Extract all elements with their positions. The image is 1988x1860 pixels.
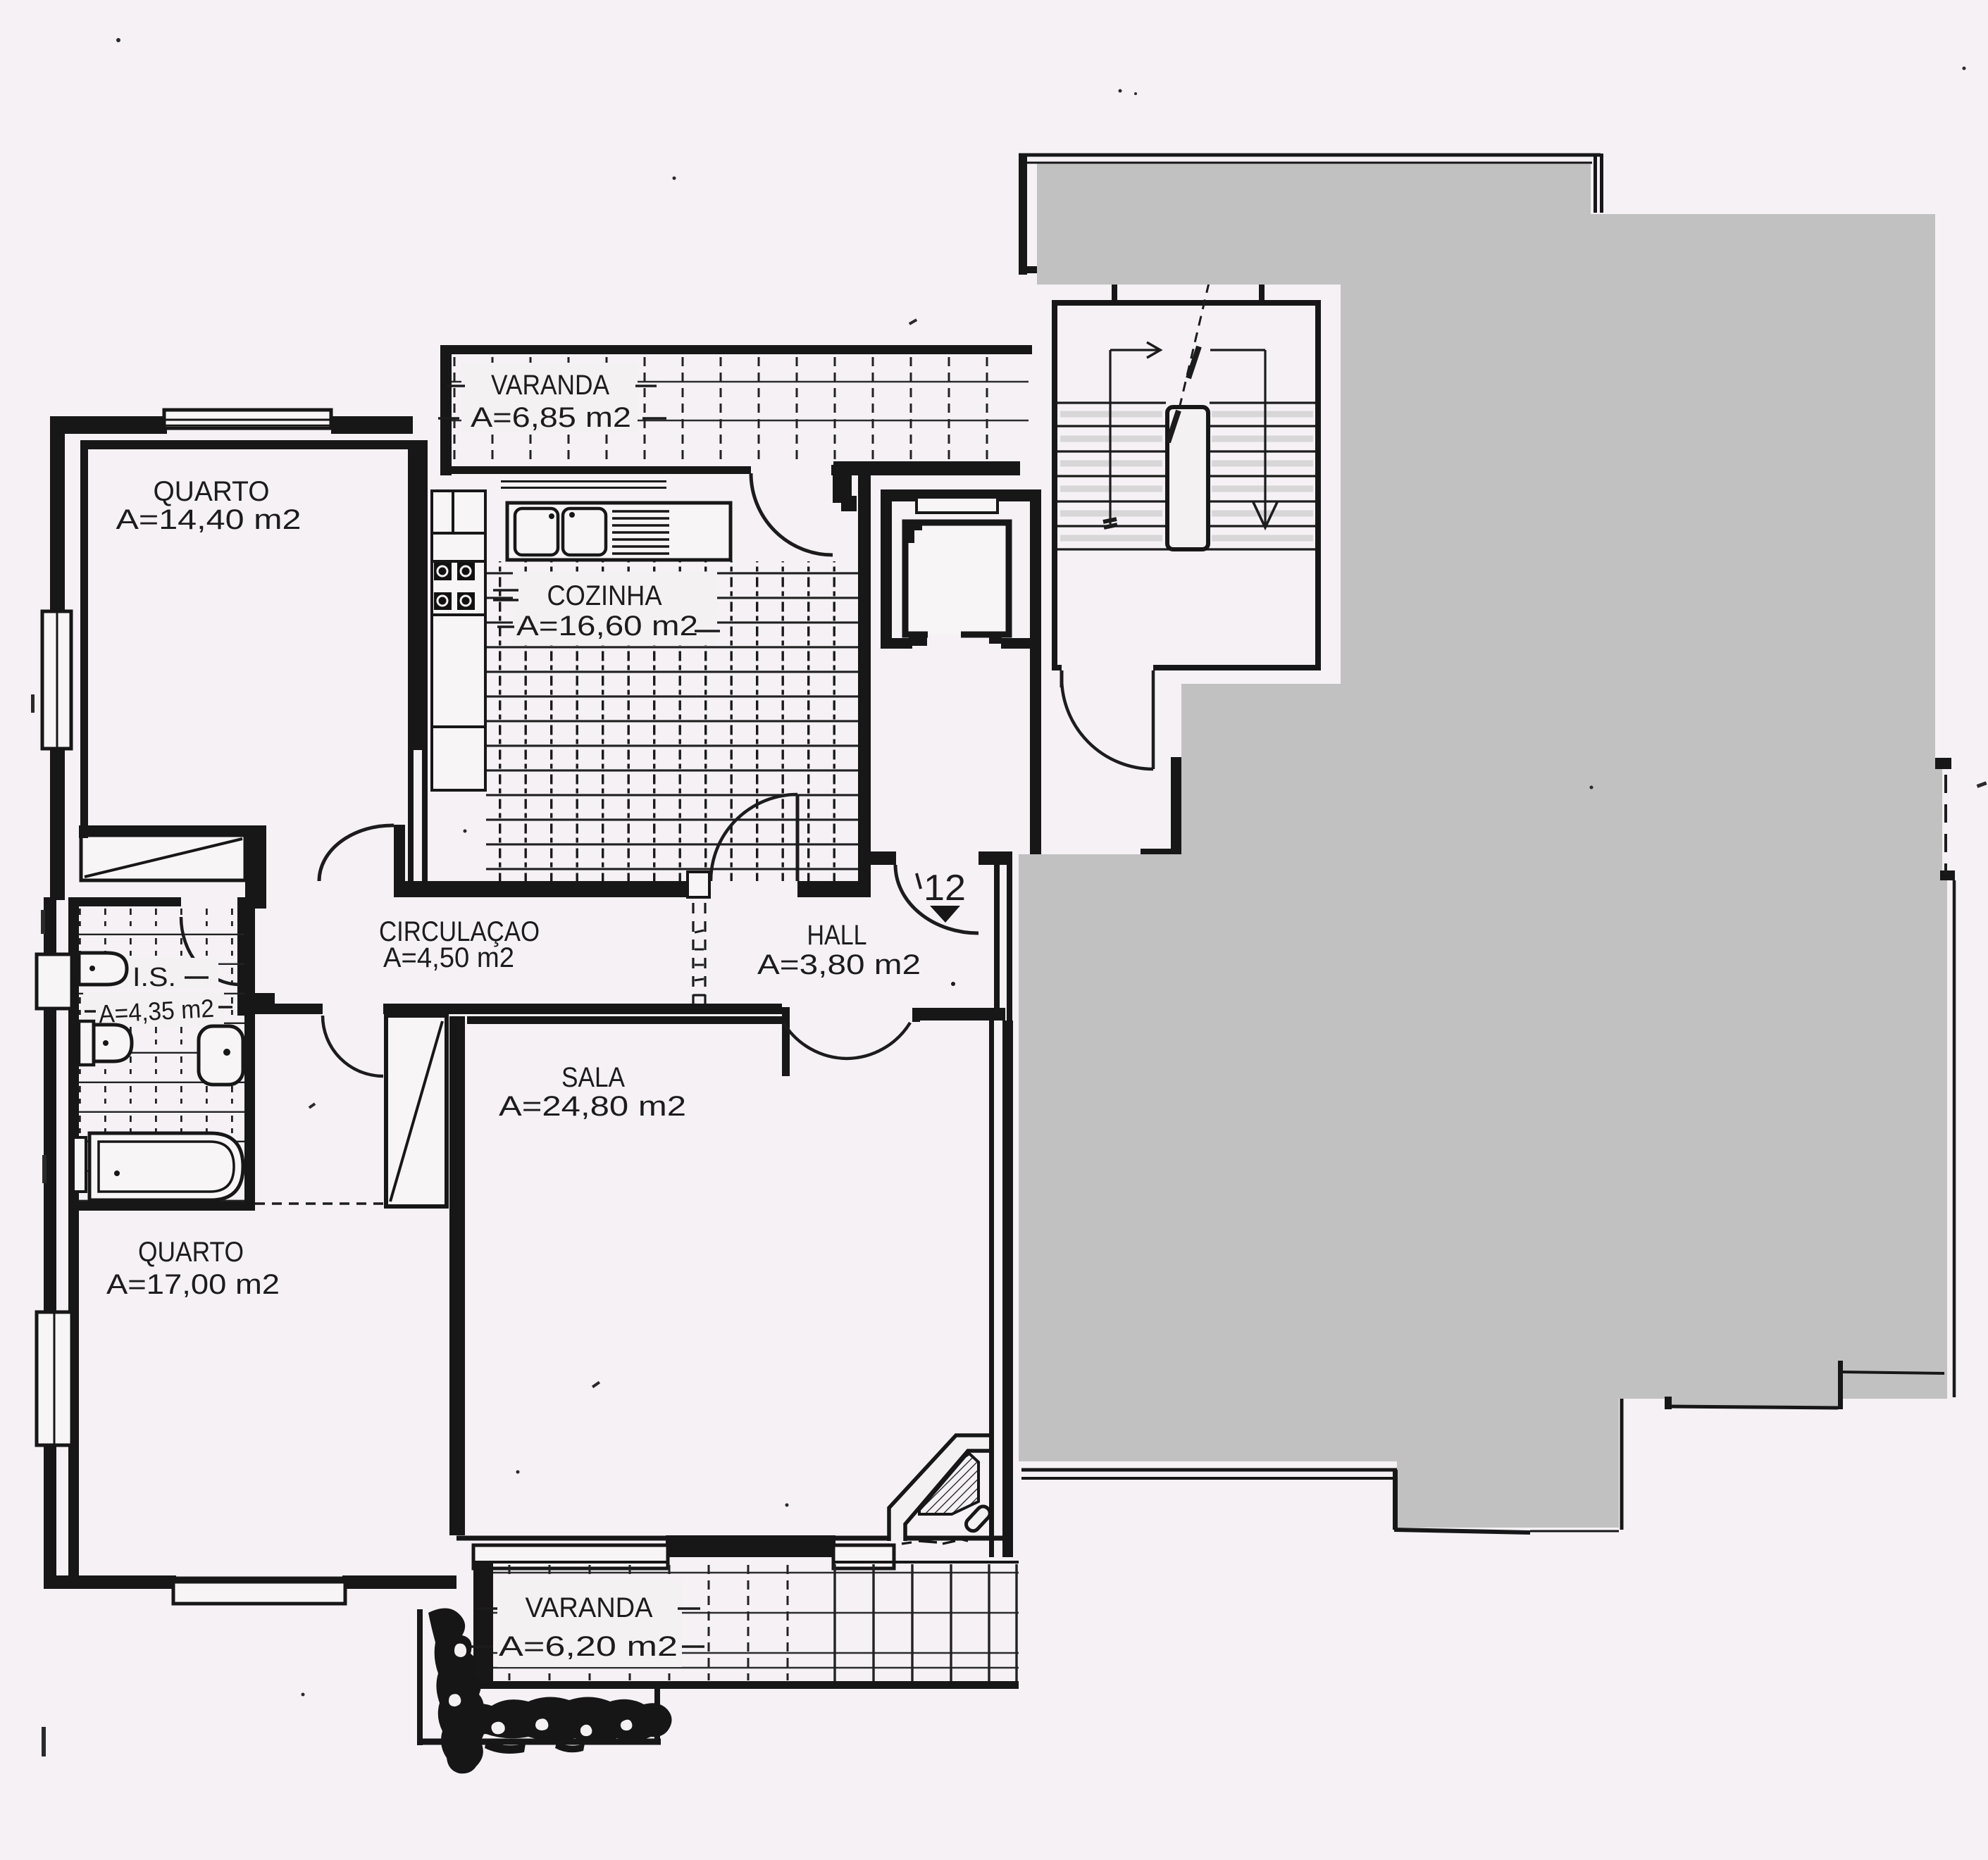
svg-text:A=14,40 m2: A=14,40 m2 xyxy=(116,504,302,535)
svg-text:12: 12 xyxy=(924,868,966,909)
svg-text:A=4,50 m2: A=4,50 m2 xyxy=(383,942,514,973)
svg-text:QUARTO: QUARTO xyxy=(154,476,270,507)
svg-text:HALL: HALL xyxy=(807,920,867,951)
svg-text:A=6,85 m2: A=6,85 m2 xyxy=(471,402,631,433)
svg-text:A=3,80 m2: A=3,80 m2 xyxy=(757,949,921,980)
svg-text:A=6,20 m2: A=6,20 m2 xyxy=(499,1631,678,1662)
svg-text:A=24,80 m2: A=24,80 m2 xyxy=(499,1091,686,1122)
svg-text:A=17,00 m2: A=17,00 m2 xyxy=(106,1269,280,1300)
svg-text:COZINHA: COZINHA xyxy=(547,580,662,611)
svg-text:VARANDA: VARANDA xyxy=(491,370,609,401)
svg-text:QUARTO: QUARTO xyxy=(138,1237,244,1268)
svg-text:SALA: SALA xyxy=(561,1062,625,1093)
svg-text:A=16,60 m2: A=16,60 m2 xyxy=(516,611,698,642)
svg-text:I.S.: I.S. xyxy=(132,963,176,992)
svg-text:VARANDA: VARANDA xyxy=(526,1592,653,1623)
